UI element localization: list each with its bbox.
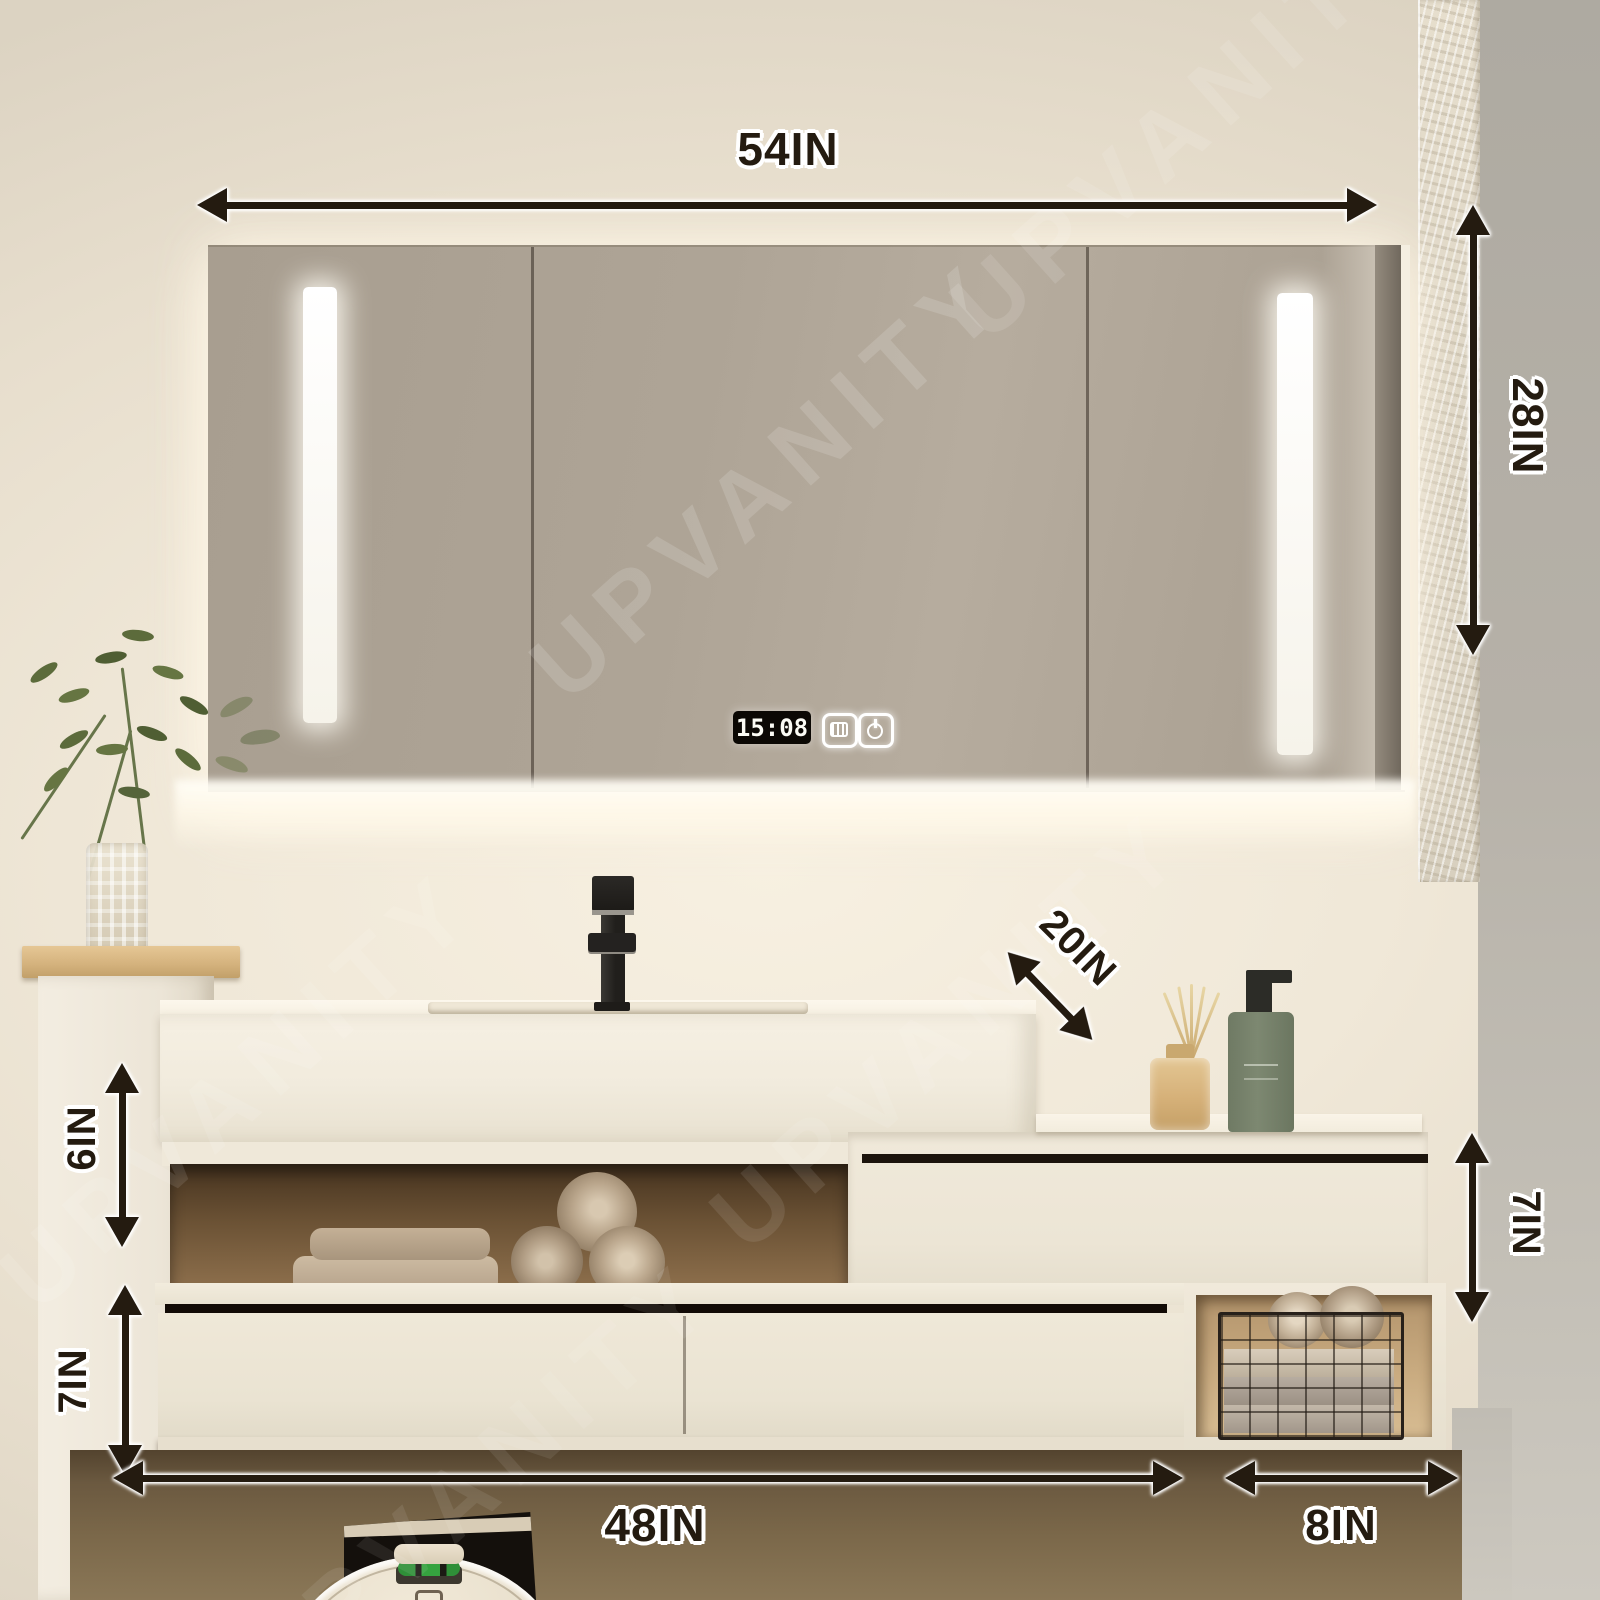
defog-icon	[830, 722, 848, 737]
clock-time: 15:08	[736, 714, 808, 742]
power-button	[858, 713, 894, 748]
upper-drawer-groove	[862, 1154, 1428, 1163]
mirror-door-seam	[1086, 247, 1089, 788]
side-shelf-width-arrow	[1225, 1460, 1458, 1496]
mirror-height-label: 28IN	[1505, 346, 1549, 506]
mirror-door-seam	[531, 247, 534, 788]
mirror-width-arrow	[197, 187, 1377, 223]
mirror-height-arrow	[1455, 205, 1491, 655]
faucet-body	[601, 915, 625, 1007]
vanity-width-arrow	[113, 1460, 1183, 1496]
led-light-strip-left	[303, 287, 337, 723]
folded-towel	[310, 1228, 490, 1260]
mirror-reflection-strip	[1322, 245, 1375, 790]
reed-diffuser	[1150, 1058, 1210, 1130]
basin-height-label: 6IN	[62, 1068, 102, 1208]
under-cabinet-glow	[175, 780, 1415, 850]
mirror-cabinet-side	[1375, 245, 1402, 790]
product-scene: 15:08	[0, 0, 1600, 1600]
lower-drawer-height-label: 7IN	[53, 1311, 93, 1451]
side-shelf-width-label: 8IN	[1261, 1504, 1421, 1548]
soap-bottle	[1228, 1012, 1294, 1132]
lower-drawer-height-arrow	[107, 1285, 143, 1475]
defog-button	[822, 713, 858, 748]
soap-label-lines	[1244, 1064, 1278, 1066]
vanity-width-label: 48IN	[545, 1502, 765, 1548]
led-light-strip-right	[1277, 293, 1313, 755]
mirror-cabinet-edge	[1401, 245, 1410, 790]
wire-basket	[1218, 1312, 1404, 1440]
right-gray-wall	[1478, 0, 1600, 1600]
faucet-handle	[588, 933, 636, 952]
upper-drawer-height-arrow	[1454, 1133, 1490, 1322]
basin-height-arrow	[104, 1063, 140, 1247]
mirror-clock-display: 15:08	[733, 711, 811, 744]
soap-pump-spout	[1266, 970, 1292, 983]
faucet	[592, 876, 634, 912]
basket-grid	[1221, 1315, 1401, 1437]
glass-vase	[86, 843, 148, 955]
mirror-width-label: 54IN	[688, 126, 888, 172]
upper-drawer-height-label: 7IN	[1506, 1153, 1546, 1293]
faucet-base	[594, 1002, 630, 1011]
pedestal-wood-top	[22, 946, 240, 978]
